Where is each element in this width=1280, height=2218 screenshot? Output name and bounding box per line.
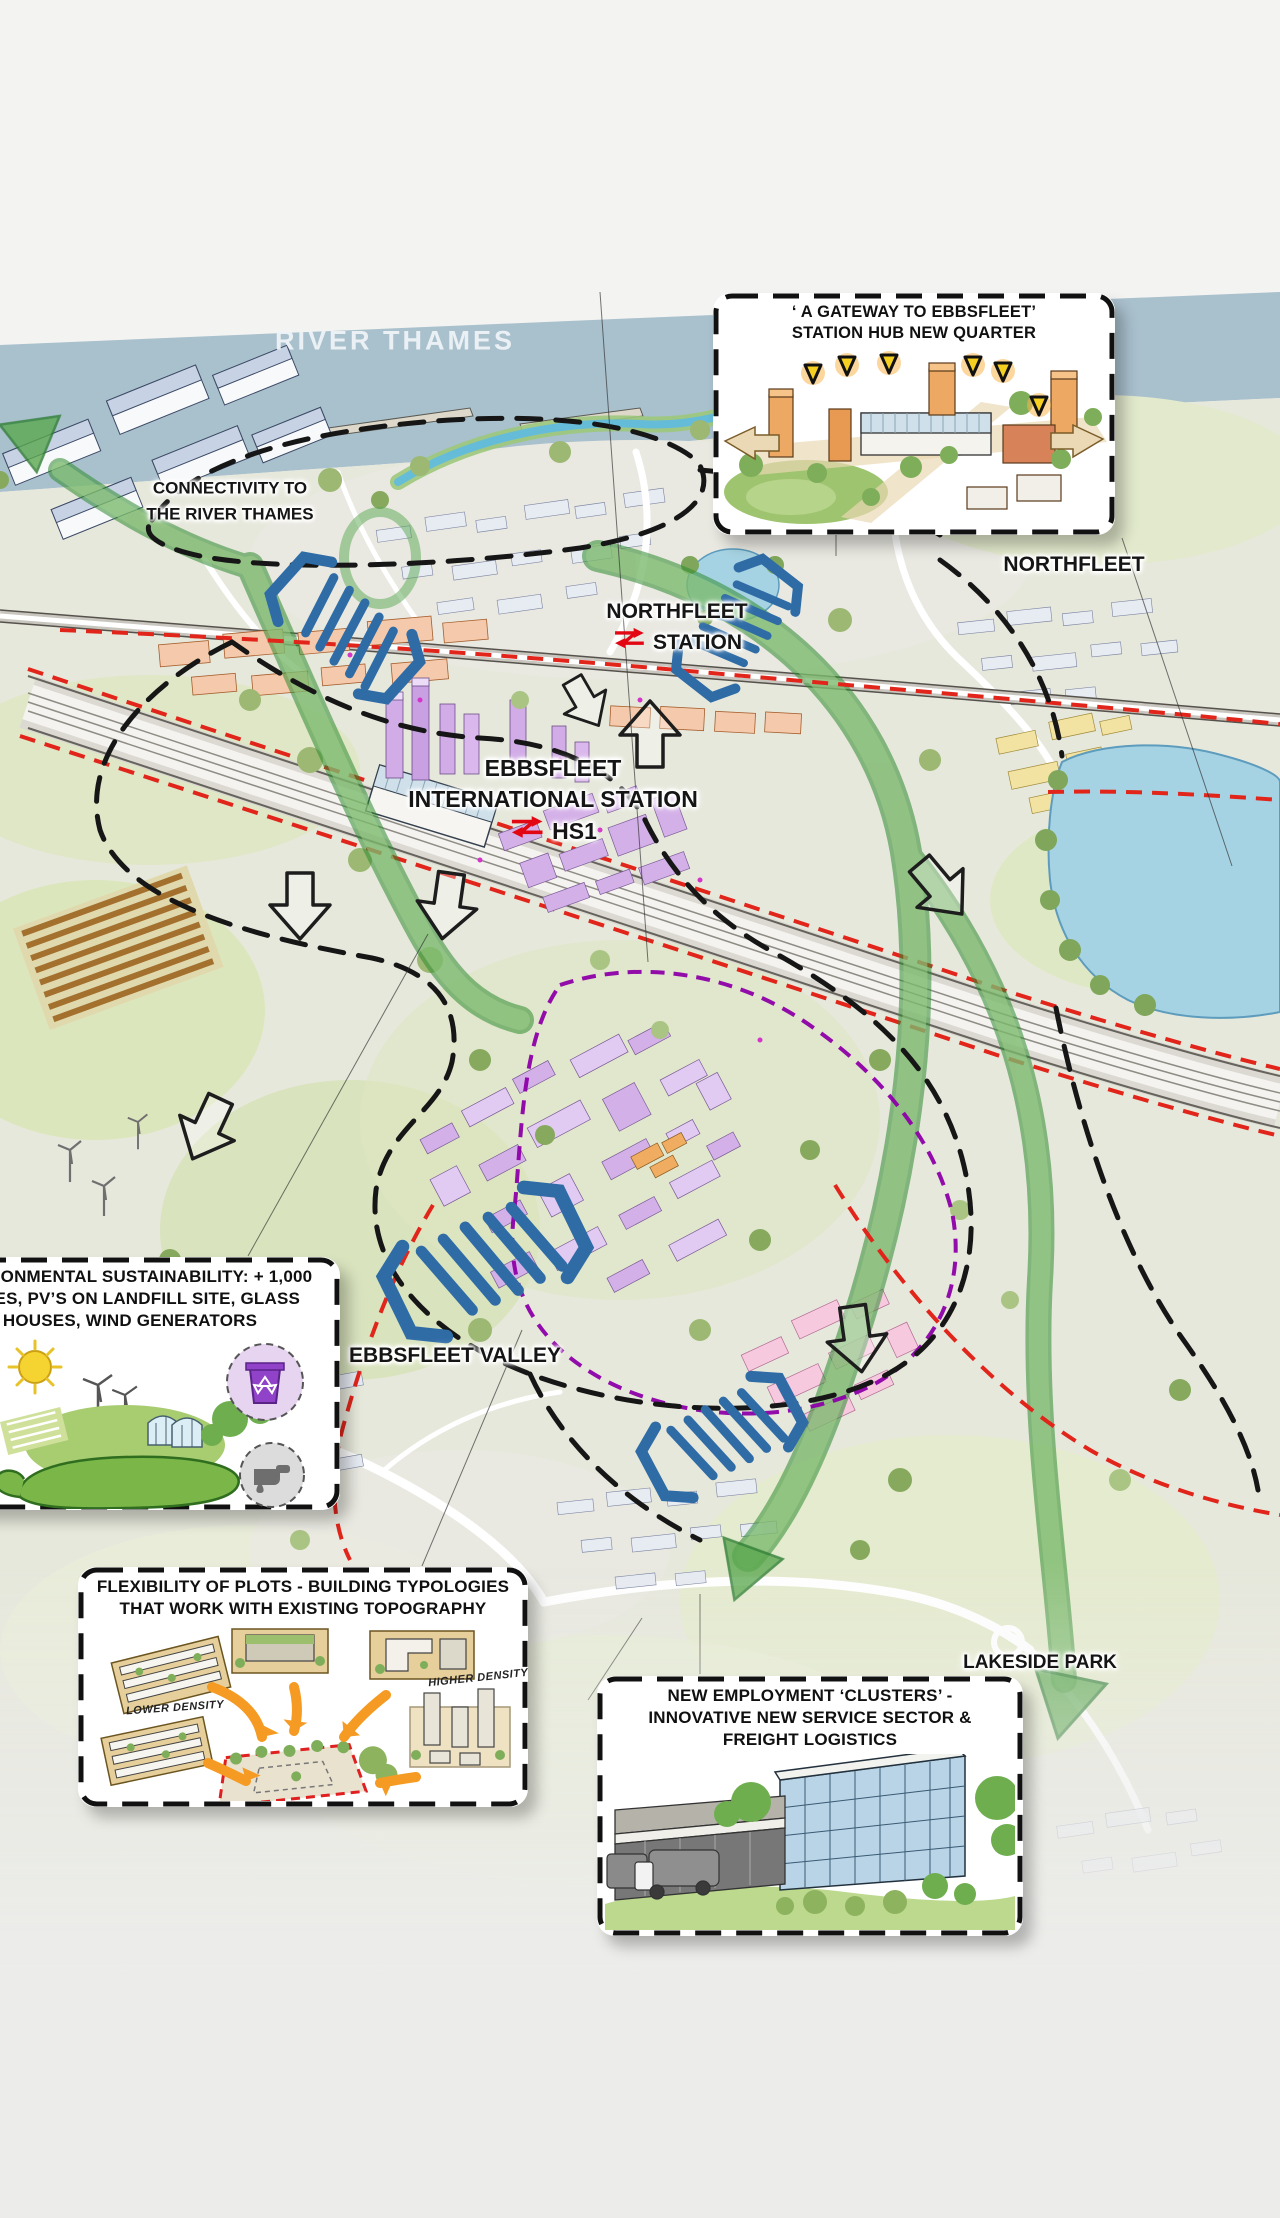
callout-flexibility-of-plots: FLEXIBILITY OF PLOTS - BUILDING TYPOLOGI… — [78, 1567, 528, 1807]
central-plot — [213, 1732, 399, 1801]
gateway-title-line2: STATION HUB NEW QUARTER — [713, 323, 1115, 344]
lakeside-park-label: LAKESIDE PARK — [963, 1652, 1117, 1674]
typology-slab — [232, 1629, 328, 1673]
ebbsfleet-international-label: EBBSFLEET INTERNATIONAL STATION HS1 — [408, 753, 698, 847]
connectivity-label: CONNECTIVITY TO THE RIVER THAMES — [146, 476, 313, 529]
sustainability-title-line2: TREES, PV’S ON LANDFILL SITE, GLASS — [0, 1288, 340, 1310]
flexibility-title-line1: FLEXIBILITY OF PLOTS - BUILDING TYPOLOGI… — [78, 1576, 528, 1598]
ebbsfleet-line1: EBBSFLEET — [408, 753, 698, 784]
recycle-bin-icon — [227, 1344, 303, 1420]
ebbsfleet-line2: INTERNATIONAL STATION — [408, 784, 698, 815]
flexibility-title-line2: THAT WORK WITH EXISTING TOPOGRAPHY — [78, 1598, 528, 1620]
sun-icon — [9, 1341, 61, 1393]
employment-title-line1: NEW EMPLOYMENT ‘CLUSTERS’ - — [597, 1685, 1023, 1707]
typology-l-shape — [370, 1631, 474, 1679]
masterplan-page: { "map": { "place_labels": { "river_tham… — [0, 0, 1280, 2218]
river-thames-label: RIVER THAMES — [275, 326, 515, 357]
connectivity-line2: THE RIVER THAMES — [146, 502, 313, 528]
employment-title-line3: FREIGHT LOGISTICS — [597, 1729, 1023, 1751]
connectivity-line1: CONNECTIVITY TO — [146, 476, 313, 502]
sustainability-title-line1: ENVIRONMENTAL SUSTAINABILITY: + 1,000 — [0, 1266, 340, 1288]
fuel-pump-icon — [240, 1443, 304, 1507]
northfleet-station-label: NORTHFLEET STATION — [606, 597, 747, 659]
gateway-illustration — [721, 347, 1107, 527]
northfleet-station-line2: STATION — [653, 628, 742, 658]
ebbsfleet-valley-label: EBBSFLEET VALLEY — [349, 1341, 561, 1371]
callout-gateway-station-hub: ‘ A GATEWAY TO EBBSFLEET’ STATION HUB NE… — [713, 293, 1115, 535]
glass-building — [775, 1754, 965, 1890]
greenhouse-icon — [148, 1416, 202, 1447]
northfleet-label: NORTHFLEET — [1003, 550, 1144, 580]
sustainability-illustration — [0, 1327, 340, 1509]
gateway-title-line1: ‘ A GATEWAY TO EBBSFLEET’ — [713, 302, 1115, 323]
typology-terraced-2 — [101, 1717, 213, 1786]
typology-towers — [410, 1689, 510, 1767]
national-rail-icon — [612, 628, 646, 659]
callout-new-employment-clusters: NEW EMPLOYMENT ‘CLUSTERS’ - INNOVATIVE N… — [597, 1676, 1023, 1936]
employment-title-line2: INNOVATIVE NEW SERVICE SECTOR & — [597, 1707, 1023, 1729]
northfleet-station-line1: NORTHFLEET — [606, 597, 747, 627]
employment-illustration — [605, 1754, 1015, 1930]
hs1-label: HS1 — [552, 816, 597, 847]
national-rail-icon — [509, 815, 545, 847]
callout-environmental-sustainability: ENVIRONMENTAL SUSTAINABILITY: + 1,000 TR… — [0, 1257, 340, 1510]
